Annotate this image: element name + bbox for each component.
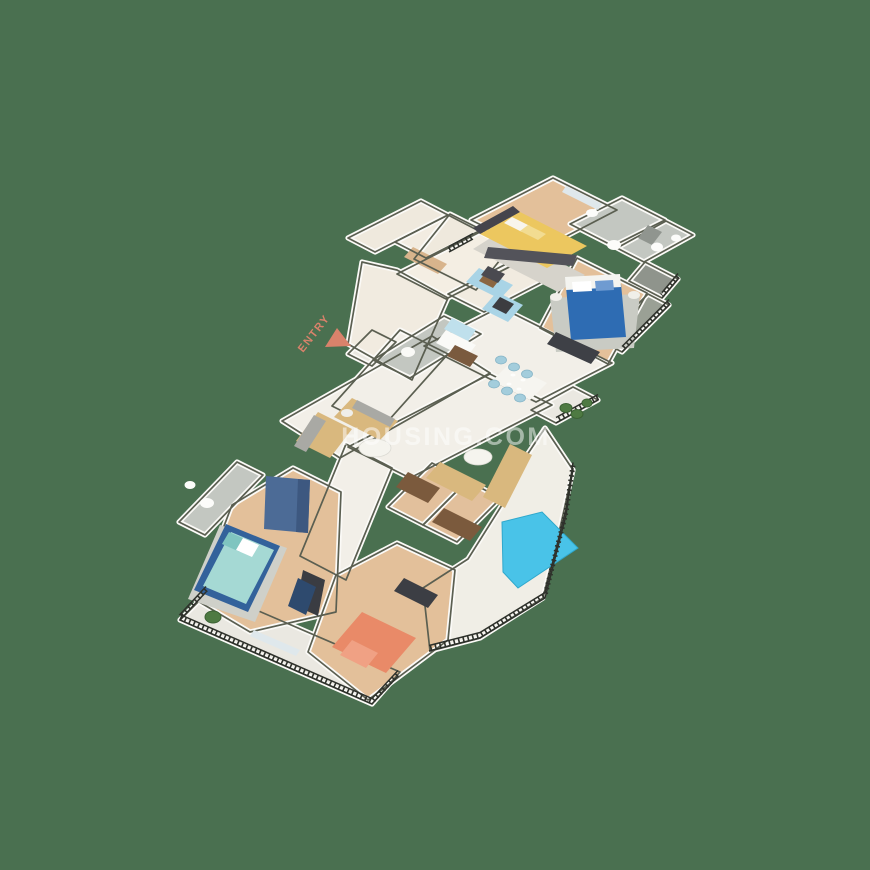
sink-bath-2	[671, 235, 681, 242]
bedroom2-pillow-2	[595, 280, 614, 291]
toilet-bathroom-3	[200, 498, 214, 508]
bedroom2-nightstand-2	[550, 293, 562, 301]
sink-bathroom-3	[185, 481, 196, 489]
dining-plate	[511, 374, 516, 377]
floorplan-stage: HOUSING.COM ENTRY	[0, 0, 870, 870]
plant	[560, 404, 572, 413]
bedroom3-wardrobe-side	[296, 479, 310, 533]
bedroom2-pillow-1	[572, 281, 592, 292]
living-side-table	[341, 409, 353, 417]
floorplan-3d-render: HOUSING.COM ENTRY	[0, 0, 870, 870]
dining-chair	[522, 370, 533, 378]
toilet-master-bath	[607, 240, 621, 250]
dining-plate	[507, 383, 512, 386]
dining-chair	[502, 387, 513, 395]
dining-plate	[517, 388, 522, 391]
sink-master-bath	[586, 209, 598, 217]
dining-plate	[521, 379, 526, 382]
dining-chair	[489, 380, 500, 388]
dining-chair	[509, 363, 520, 371]
plant	[205, 611, 221, 623]
bedroom2-nightstand-1	[628, 291, 640, 299]
dining-chair	[496, 356, 507, 364]
plant	[582, 399, 592, 407]
powder-toilet	[401, 347, 415, 357]
dining-chair	[515, 394, 526, 402]
lounge-table	[464, 449, 492, 465]
bedroom2-bed-blue	[566, 284, 626, 340]
plant	[571, 410, 583, 419]
housing-watermark: HOUSING.COM	[341, 423, 550, 451]
toilet-bath-2	[651, 243, 663, 252]
